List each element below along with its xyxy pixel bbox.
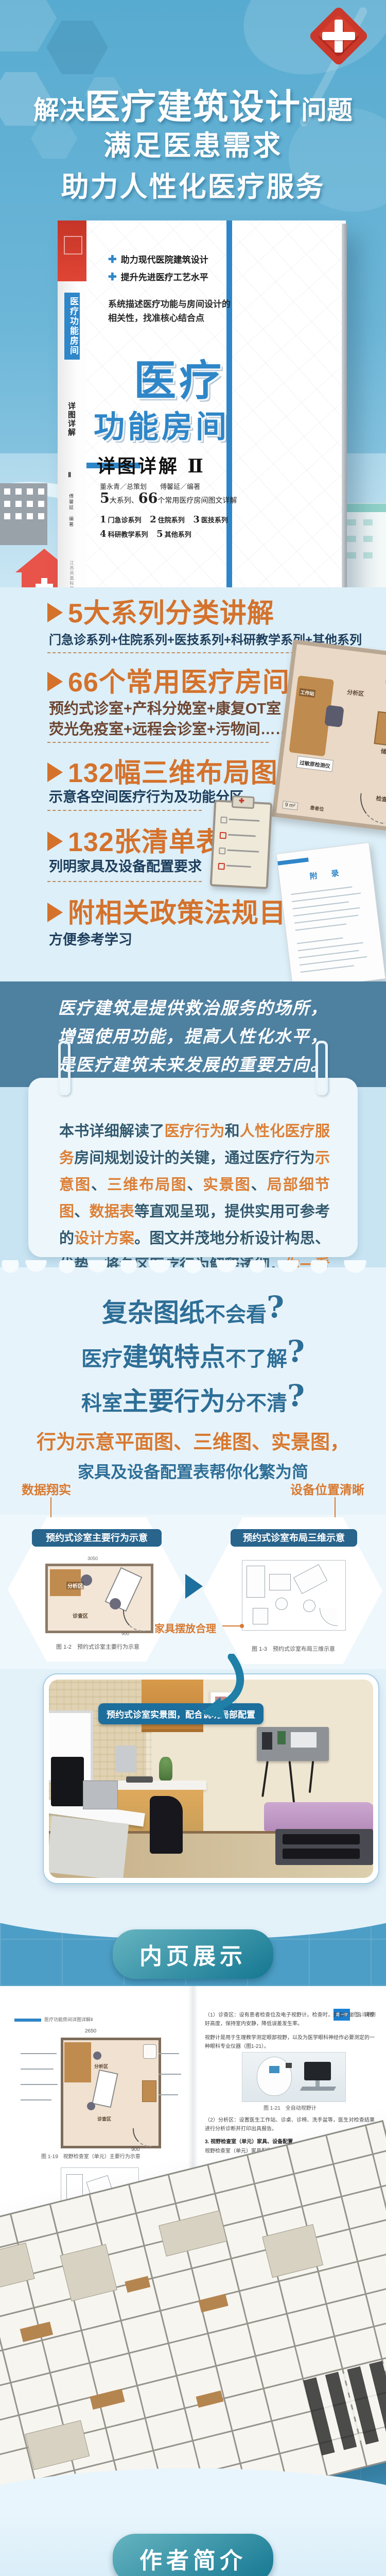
sink [126, 1776, 153, 1783]
question-2: 医疗建筑特点不了解? [0, 1336, 386, 1374]
header-bar [14, 2019, 41, 2022]
cover-subtitle: 详图详解 Ⅱ [97, 451, 205, 478]
hanging-ring [315, 1041, 328, 1095]
cabinet-illustration [374, 711, 386, 747]
feature-4-title: 132张清单表 [47, 820, 223, 859]
book-spine: 医疗功能房间 详图详解 Ⅱ 傅馨延 编著 江苏凤凰科学技术出版社 [58, 221, 87, 587]
cover-series-row2: 4科研教学系列 5其他系列 [100, 529, 191, 539]
label-furniture-reasonable: 家具摆放合理 [154, 1620, 216, 1635]
exam-bed-top [264, 1802, 373, 1831]
desk-illustration [64, 2042, 91, 2082]
torn-paper-edge [0, 1260, 386, 1278]
connector-line [222, 1625, 241, 1626]
questions-section: 复杂图纸不会看? 医疗建筑特点不了解? 科室主要行为分不清? 行为示意平面图、三… [0, 1267, 386, 1515]
right-paragraph-1: （1）诊查区：设有患者检查位及电子视野计。检查时，患者取坐位，调整好高度，保持室… [205, 2011, 375, 2028]
bed-illustration [92, 2070, 118, 2108]
headline-emphasis: 医疗建筑设计 [85, 88, 301, 127]
triangle-bullet-icon [47, 903, 63, 922]
connector-dot [240, 1624, 244, 1628]
photo-section: 预约式诊室实景图，配合说明局部配置 [0, 1669, 386, 1909]
stool-illustration [87, 2102, 95, 2110]
curved-arrow-icon [170, 1654, 247, 1726]
annotation-line [159, 2074, 181, 2075]
stool-outline [303, 1600, 315, 1612]
annotation-line [159, 2094, 178, 2095]
instrument-cord [261, 1761, 269, 1797]
room-block [0, 2243, 35, 2293]
spine-subtitle: 详图详解 [66, 402, 77, 437]
box-outline [253, 1608, 268, 1624]
feature-2-sub2: 荧光免疫室+远程会诊室+污物间…… [49, 717, 290, 739]
instrument-cord [309, 1761, 314, 1793]
question-1: 复杂图纸不会看? [0, 1292, 386, 1329]
description-card: 本书详细解读了医疗行为和人性化医疗服务房间规划设计的关键，通过医疗行为示意图、三… [28, 1078, 358, 1257]
description-section: 本书详细解读了医疗行为和人性化医疗服务房间规划设计的关键，通过医疗行为示意图、三… [0, 1087, 386, 1267]
connector-line [335, 1497, 336, 1515]
hero-section: 解决医疗建筑设计问题 满足医患需求 助力人性化医疗服务 [0, 0, 386, 587]
zone-label: 分析区 [94, 2063, 108, 2070]
hex-right-header: 预约式诊室布局三维示意 [231, 1529, 357, 1547]
hex-right-caption: 图 1-3 预约式诊室布局三维示意 [216, 1645, 371, 1653]
furniture-block [90, 2388, 125, 2410]
book-cover-mockup: 医疗功能房间 详图详解 Ⅱ 傅馨延 编著 江苏凤凰科学技术出版社 ✚助力现代医院… [58, 221, 346, 587]
headline-prefix: 解决 [33, 96, 85, 125]
diagrams-section: 预约式诊室主要行为示意 预约式诊室布局三维示意 分析区 诊查区 3050 900… [0, 1515, 386, 1669]
spine-red-block [58, 221, 86, 281]
keyboard [300, 2087, 337, 2091]
feature-2-title: 66个常用医疗房间 [47, 660, 290, 699]
hex-left-header: 预约式诊室主要行为示意 [32, 1529, 162, 1547]
figure-1-19-floorplan: 分析区 诊查区 [61, 2038, 161, 2148]
furniture-block [198, 2294, 228, 2312]
seat-label: 患者位 [310, 804, 324, 812]
hex-left-caption: 图 1-2 预约式诊室主要行为示意 [21, 1642, 175, 1651]
zone-label: 分析区 [346, 688, 364, 698]
triangle-bullet-icon [47, 762, 63, 782]
book-front-cover: ✚助力现代医院建筑设计 ✚提升先进医疗工艺水平 系统描述医疗功能与房间设计的相关… [86, 221, 346, 587]
door-arc [357, 793, 386, 824]
appendix-title: 附 录 [279, 863, 372, 886]
page-header-left: 医疗功能房间详图详解Ⅱ [14, 2016, 93, 2023]
dimension-label: 2650 [85, 2028, 96, 2034]
annotation-line [21, 2053, 57, 2054]
feature-1-title: 5大系列分类讲解 [47, 591, 274, 630]
stool-outline [275, 1598, 288, 1610]
paper-sorter [83, 1781, 118, 1809]
question-3: 科室主要行为分不清? [0, 1381, 386, 1418]
monitor [51, 1757, 84, 1806]
instrument-cord [289, 1761, 295, 1804]
figure-1-21-photo [242, 2052, 346, 2102]
triangle-bullet-icon [47, 603, 63, 622]
stool-illustration [93, 2052, 101, 2060]
cover-title-line2: 功能房间 [94, 402, 230, 447]
furniture-block [196, 2391, 224, 2408]
stool-illustration [110, 1598, 121, 1609]
zone-label: 诊查区 [97, 2115, 111, 2122]
threed-layout-drawing [242, 1560, 346, 1631]
sink-illustration [143, 2044, 156, 2059]
feature-5-title: 附相关政策法规目录 [47, 891, 313, 930]
annotation-line [21, 2069, 54, 2070]
checkbox-icon [220, 817, 227, 824]
area-label: 9 m² [282, 801, 299, 810]
product-detail-page: { "colors": { "hero_blue": "#58abd0", "a… [0, 0, 386, 2576]
headline-suffix: 问题 [301, 96, 353, 125]
zone-label: 诊查区 [73, 1612, 88, 1619]
hero-headline-line3: 助力人性化医疗服务 [0, 164, 386, 205]
dashed-divider [47, 742, 269, 743]
triangle-bullet-icon [47, 672, 63, 691]
cabinet-outline [247, 1566, 265, 1598]
equipment-tag: 过敏原检测仪 [296, 756, 334, 772]
plus-icon: ✚ [108, 272, 117, 283]
appendix-page-illustration: 附 录 [276, 842, 385, 990]
cover-series-row1: 1门急诊系列 2住院系列 3医技系列 [100, 514, 228, 525]
cover-authors: 董永青／总策划 傅馨延／编著 [100, 481, 200, 491]
door-arc [133, 2128, 151, 2147]
room-block [25, 2420, 90, 2470]
page-header-bar [277, 858, 309, 866]
plus-icon: ✚ [108, 254, 117, 265]
triangle-bullet-icon [47, 832, 63, 851]
answer-orange: 行为示意平面图、三维图、实景图， [0, 1426, 386, 1454]
furniture-block [125, 2276, 150, 2293]
checkbox-icon [219, 848, 226, 855]
hanging-ring [58, 1041, 71, 1095]
annotation-line [21, 2084, 58, 2085]
cover-series-headline: 5大系列、66个常用医疗房间图文详解 [100, 490, 237, 506]
figure-1-19-caption: 图 1-19 视野检查室（单元）主要行为示意 [41, 2152, 141, 2160]
room-block [262, 2224, 323, 2278]
clipboard-illustration [210, 800, 273, 889]
quote-line1: 医疗建筑是提供救治服务的场所， [0, 994, 386, 1022]
desk-outline [269, 1574, 291, 1590]
diagnostic-panel [257, 1727, 329, 1761]
dashed-divider [47, 810, 202, 811]
author-section: 作者简介 傅馨延 毕业于北京大学医学部，曾为医院重症监护病房护士，现职于北京睿勤… [0, 2514, 386, 2576]
feature-2-sub1: 预约式诊室+产科分娩室+康复OT室 [49, 697, 281, 718]
feature-5-sub: 方便参考学习 [49, 928, 132, 948]
hospital-building-illustration [341, 503, 386, 587]
paper-towel-dispenser [116, 1745, 136, 1772]
plant [159, 1757, 172, 1781]
device-screen [269, 2066, 279, 2073]
spine-title: 医疗功能房间 [64, 293, 80, 360]
behavior-floorplan: 分析区 诊查区 [45, 1564, 153, 1633]
monitor-stand [315, 2080, 320, 2087]
chair-illustration [324, 705, 344, 727]
checkbox-icon [218, 863, 225, 870]
inner-pages-button: 内页展示 [113, 1929, 273, 1979]
curve-transition [0, 2468, 386, 2515]
hexagon-decor [46, 21, 108, 74]
right-paragraph-2: 视野计是用于生理教学测定眼部视野，以及为医学眼科神经作必要测定的一种眼科专业仪器… [205, 2033, 375, 2051]
door-outline [320, 1608, 338, 1626]
dimension-top: 3050 [87, 1556, 98, 1561]
figure-1-21-caption: 图 1-21 全自动视野计 [264, 2104, 317, 2111]
book-page-edge [342, 224, 347, 587]
flow-arrow-icon [185, 1574, 203, 1599]
door-arc [123, 1610, 145, 1632]
annotation-line [159, 2053, 179, 2054]
checkbox-icon [220, 832, 227, 839]
zone-label: 分析区 [66, 1582, 84, 1589]
building-illustration [0, 483, 47, 545]
cover-bullet-2: ✚提升先进医疗工艺水平 [108, 270, 208, 283]
publisher-stamp [64, 236, 82, 255]
feature-3-title: 132幅三维布局图 [47, 751, 278, 790]
hero-headline-line1: 解决医疗建筑设计问题 [0, 78, 386, 129]
label-data-detailed: 数据翔实 [22, 1480, 71, 1498]
annotation-line [21, 2099, 51, 2100]
furniture-block [20, 2321, 54, 2342]
bed-outline [293, 1564, 327, 1594]
monitor [304, 2062, 331, 2080]
spine-publisher: 江苏凤凰科学技术出版社 [69, 561, 75, 587]
spine-author: 傅馨延 编著 [68, 494, 75, 528]
cover-bullet-1: ✚助力现代医院建筑设计 [108, 252, 208, 266]
exam-bed-base [275, 1829, 373, 1865]
hexagon-decor [0, 0, 57, 52]
device-button [286, 2063, 292, 2068]
office-chair [150, 1796, 183, 1854]
spine-volume: Ⅱ [68, 471, 71, 479]
desk-body [49, 1816, 129, 1878]
cover-tagline: 系统描述医疗功能与房间设计的相关性，找准核心结合点 [108, 298, 231, 326]
cover-title-line1: 医疗 [134, 346, 224, 408]
connector-line [50, 1497, 51, 1515]
threed-plan-section [0, 2254, 386, 2514]
dimension-bottom: 900 [121, 1631, 129, 1636]
dashed-divider [47, 881, 202, 882]
author-section-button: 作者简介 [113, 2534, 273, 2576]
hero-headline-line2: 满足医患需求 [0, 123, 386, 163]
medical-cross-logo-icon [315, 12, 362, 60]
room-block [60, 2244, 117, 2302]
inner-pages-banner: 内页展示 [0, 1909, 386, 1986]
zone-label: 储存区 [380, 747, 386, 757]
room-block [159, 2210, 227, 2257]
label-equipment-clear: 设备位置清晰 [290, 1480, 364, 1498]
cabinet-illustration [142, 2080, 156, 2102]
feature-4-sub: 列明家具及设备配置要求 [49, 855, 202, 875]
clipboard-clip [232, 795, 255, 809]
seating-rows [303, 2353, 386, 2455]
features-section: 5大系列分类讲解 门急诊系列+住院系列+医技系列+科研教学系列+其他系列 66个… [0, 587, 386, 981]
